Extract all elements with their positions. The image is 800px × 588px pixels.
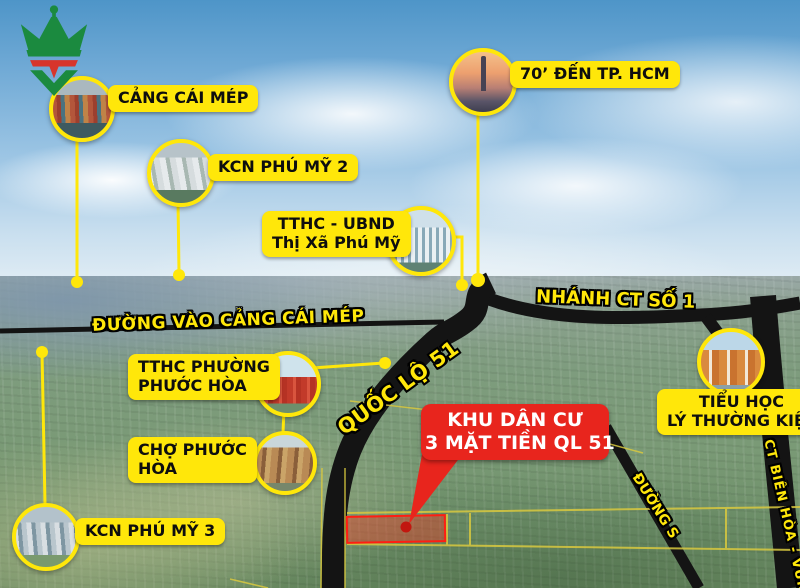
callout-label-line1: TTHC PHƯỜNG: [138, 358, 270, 377]
callout-cho-phuoc-hoa: CHỢ PHƯỚC HÒA: [128, 437, 257, 483]
cho-phuoc-hoa-photo: [253, 431, 317, 495]
project-plot-outline: [347, 515, 445, 543]
project-pointer-dot: [401, 522, 412, 533]
callout-tieu-hoc-ly-thuong-kiet: TIỂU HỌC LÝ THƯỜNG KIỆT: [657, 389, 800, 435]
callout-kcn-phu-my-2: KCN PHÚ MỸ 2: [208, 154, 358, 181]
project-title-line2: 3 MẶT TIỀN QL 51: [425, 432, 605, 455]
callout-label-line2: LÝ THƯỜNG KIỆT: [667, 412, 800, 431]
kcn-phu-my-2-photo: [147, 139, 215, 207]
callout-label-line1: TTHC - UBND: [272, 215, 401, 234]
landmark81-photo: [449, 48, 517, 116]
callout-kcn-phu-my-3: KCN PHÚ MỸ 3: [75, 518, 225, 545]
callout-tthc-phuong-phuoc-hoa: TTHC PHƯỜNG PHƯỚC HÒA: [128, 354, 280, 400]
callout-label: KCN PHÚ MỸ 2: [218, 158, 348, 177]
project-title-line1: KHU DÂN CƯ: [425, 409, 605, 432]
aerial-map: ĐƯỜNG VÀO CẢNG CÁI MÉP NHÁNH CT SỐ 1 QUỐ…: [0, 0, 800, 588]
callout-label: CẢNG CÁI MÉP: [118, 89, 248, 108]
callout-70-den-tp-hcm: 70’ ĐẾN TP. HCM: [510, 61, 680, 88]
tieu-hoc-photo: [697, 328, 765, 396]
callout-label-line2: HÒA: [138, 460, 247, 479]
callout-label-line2: PHƯỚC HÒA: [138, 377, 270, 396]
kcn-phu-my-3-photo: [12, 503, 80, 571]
callout-label-line1: TIỂU HỌC: [667, 393, 800, 412]
brand-logo: [8, 4, 100, 96]
callout-tthc-ubnd: TTHC - UBND Thị Xã Phú Mỹ: [262, 211, 411, 257]
callout-label: KCN PHÚ MỸ 3: [85, 522, 215, 541]
callout-label-line1: CHỢ PHƯỚC: [138, 441, 247, 460]
callout-label-line2: Thị Xã Phú Mỹ: [272, 234, 401, 253]
crown-logo-icon: [21, 5, 87, 96]
callout-cang-cai-mep: CẢNG CÁI MÉP: [108, 85, 258, 112]
callout-label: 70’ ĐẾN TP. HCM: [520, 65, 670, 84]
project-callout: KHU DÂN CƯ 3 MẶT TIỀN QL 51: [421, 404, 609, 460]
